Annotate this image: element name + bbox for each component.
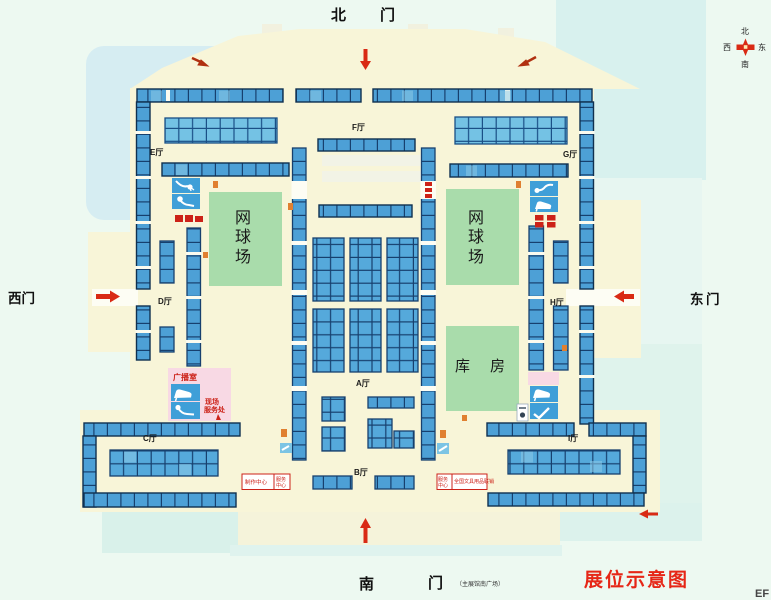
svg-text:服务: 服务 xyxy=(276,476,286,483)
svg-text:西门: 西门 xyxy=(8,290,35,306)
svg-text:东门: 东门 xyxy=(690,291,722,307)
svg-text:全国文具用品联销: 全国文具用品联销 xyxy=(454,478,494,485)
svg-text:北: 北 xyxy=(331,7,346,24)
svg-text:场: 场 xyxy=(235,248,251,266)
svg-text:B厅: B厅 xyxy=(354,468,368,477)
svg-text:I厅: I厅 xyxy=(568,434,578,443)
svg-text:西: 西 xyxy=(723,43,731,52)
svg-text:服务: 服务 xyxy=(438,476,448,483)
svg-text:制作中心: 制作中心 xyxy=(245,478,268,486)
svg-text:（主展馆南广场）: （主展馆南广场） xyxy=(456,580,504,588)
svg-text:场: 场 xyxy=(468,248,484,266)
svg-text:H厅: H厅 xyxy=(550,298,564,307)
svg-text:球: 球 xyxy=(235,228,251,246)
svg-text:库: 库 xyxy=(455,358,470,375)
svg-text:F厅: F厅 xyxy=(352,123,365,132)
svg-text:门: 门 xyxy=(428,574,443,592)
svg-text:网: 网 xyxy=(468,210,484,227)
svg-text:E厅: E厅 xyxy=(150,148,163,157)
svg-text:房: 房 xyxy=(490,358,505,375)
svg-text:广播室: 广播室 xyxy=(173,372,197,382)
svg-text:中心: 中心 xyxy=(276,482,286,489)
svg-text:G厅: G厅 xyxy=(563,150,577,159)
svg-text:门: 门 xyxy=(380,6,395,24)
svg-text:南: 南 xyxy=(359,575,374,593)
svg-text:A厅: A厅 xyxy=(356,379,370,388)
svg-text:北: 北 xyxy=(741,27,749,36)
svg-text:D厅: D厅 xyxy=(158,297,172,306)
svg-text:球: 球 xyxy=(468,228,484,246)
svg-text:现场: 现场 xyxy=(205,397,219,406)
svg-text:展位示意图: 展位示意图 xyxy=(584,568,689,591)
svg-text:中心: 中心 xyxy=(438,482,448,489)
svg-text:服务处: 服务处 xyxy=(204,405,226,414)
svg-text:C厅: C厅 xyxy=(143,434,157,443)
svg-text:东: 东 xyxy=(758,42,766,52)
svg-text:EF: EF xyxy=(755,588,769,600)
svg-text:网: 网 xyxy=(235,210,251,227)
svg-text:南: 南 xyxy=(741,59,749,69)
